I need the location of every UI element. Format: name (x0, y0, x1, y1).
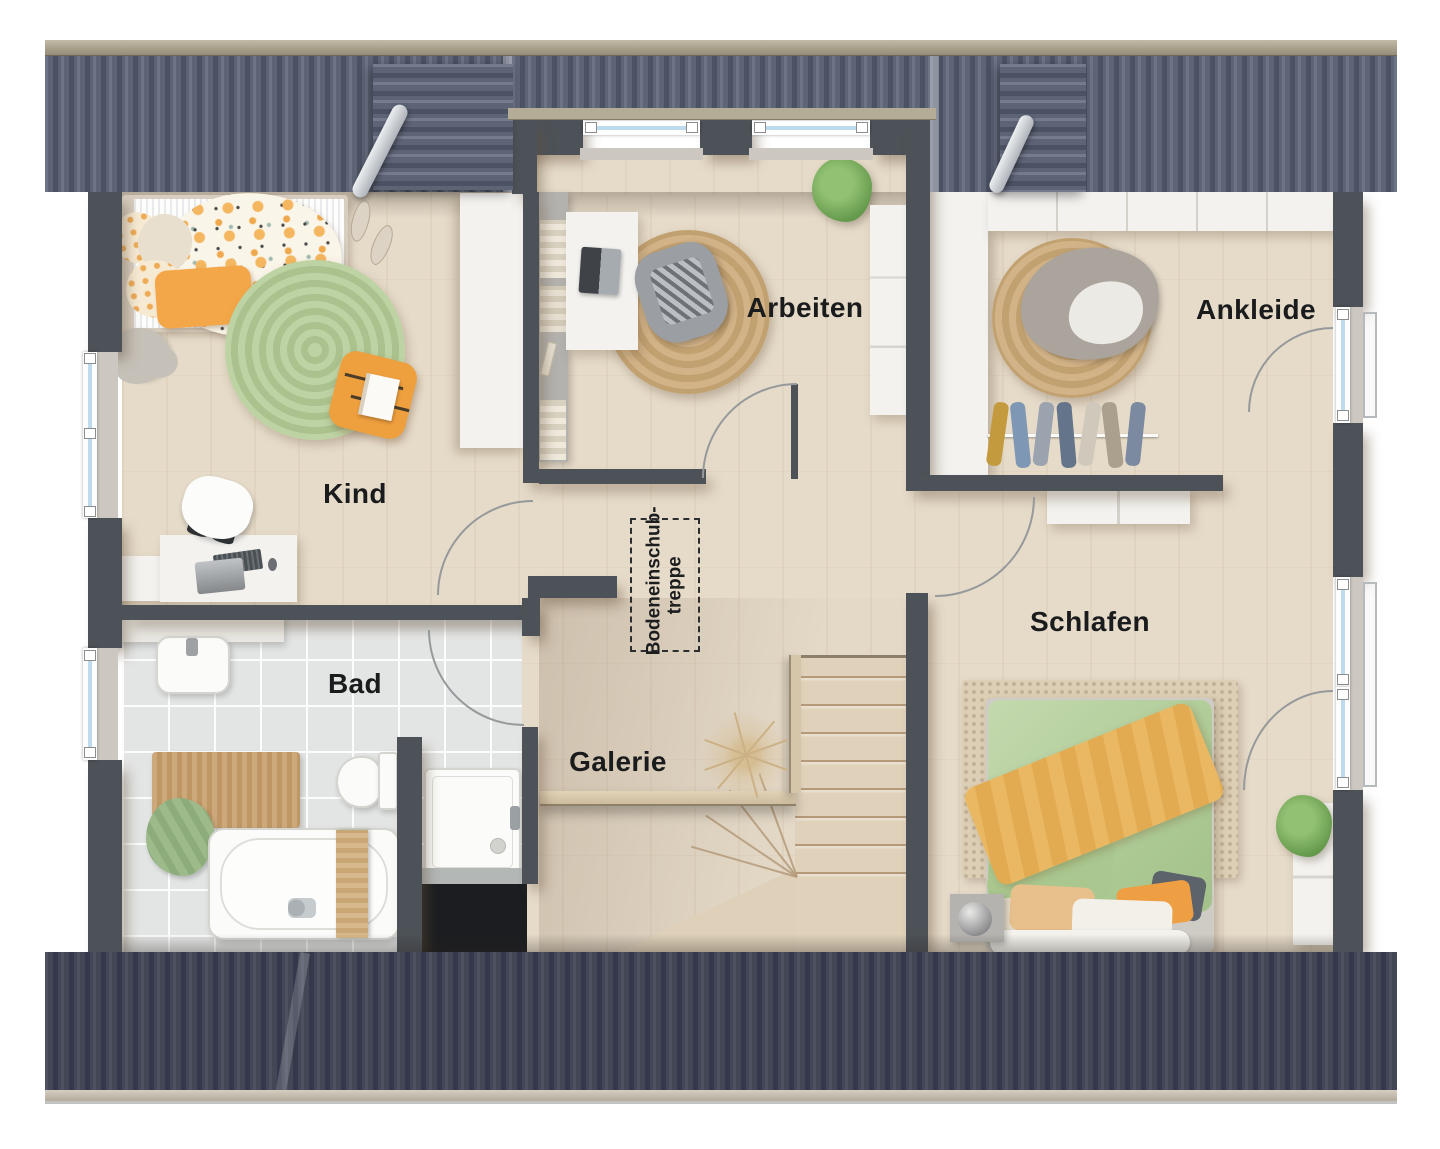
window-glass (1341, 691, 1345, 786)
room-label-schlafen: Schlafen (1020, 606, 1160, 638)
attic-hatch-label: Bodeneinschub- treppe (644, 515, 687, 655)
wall-bad-inner (397, 737, 422, 952)
window-cap (84, 650, 96, 661)
window-sill (1350, 577, 1363, 790)
window-glass (756, 126, 866, 130)
bad-sink-faucet (186, 638, 198, 656)
arbeiten-laptop (578, 247, 621, 296)
window-cap (1337, 410, 1349, 421)
wall-bad-east (522, 598, 540, 636)
window-glass (587, 126, 696, 130)
roof-edge-highlight (930, 56, 939, 192)
ankleide-cabinet-bottom (1047, 487, 1190, 524)
arbeiten-books (540, 286, 566, 332)
kind-monitor (194, 558, 245, 595)
room-label-arbeiten: Arbeiten (735, 292, 875, 324)
window-cap (84, 747, 96, 758)
schlafen-sphere-lamp (958, 902, 992, 936)
schlafen-plant (1276, 795, 1332, 857)
window-arbeiten-2 (752, 121, 870, 135)
bad-towel-green (146, 798, 214, 876)
window-cap (585, 122, 597, 133)
wall-outer-left (88, 518, 122, 648)
wall-schlafen-west (906, 593, 928, 952)
wall-hall-stub (528, 576, 617, 598)
window-sill (1350, 307, 1363, 423)
window-ankleide (1336, 307, 1350, 423)
bad-shower-drain (490, 838, 506, 854)
roof-ridge-top (45, 40, 1397, 57)
stair-tread (795, 732, 906, 734)
wall-arbeiten-south (539, 469, 706, 484)
window-bad (83, 648, 97, 760)
wall-kind-arbeiten (523, 192, 539, 483)
wall-bad-east (522, 727, 538, 884)
room-label-kind: Kind (300, 478, 410, 510)
kind-wardrobe (460, 193, 527, 448)
room-label-ankleide: Ankleide (1186, 294, 1326, 326)
window-cap (686, 122, 698, 133)
roof-band-bottom (45, 952, 1397, 1092)
stair-tread (795, 872, 906, 874)
wall-ankleide-schlafen (906, 475, 1223, 491)
room-label-bad: Bad (320, 668, 390, 700)
room-label-galerie: Galerie (548, 746, 688, 778)
window-glass (1341, 311, 1345, 419)
floor-plan: Kind Arbeiten Ankleide (0, 0, 1440, 1149)
window-outer-frame (1363, 582, 1377, 787)
bad-toilet-bowl (336, 756, 384, 808)
wall-dormer-top (700, 118, 752, 155)
glass-door-schlafen (1336, 687, 1350, 790)
window-cap (754, 122, 766, 133)
window-cap (1337, 579, 1349, 590)
ankleide-wardrobe-left (928, 192, 988, 475)
arbeiten-cabinet (870, 205, 906, 415)
window-handle (84, 428, 96, 439)
window-arbeiten-1 (583, 121, 700, 135)
stair-tread (795, 704, 906, 706)
wall-outer-right (1333, 192, 1363, 307)
window-cap (1337, 674, 1349, 685)
stair-tread (795, 760, 906, 762)
window-sill (97, 352, 118, 518)
bad-shower-faucet (510, 806, 520, 830)
window-cap (1337, 777, 1349, 788)
attic-hatch-outline: Bodeneinschub- treppe (630, 518, 700, 652)
arbeiten-plant (812, 158, 872, 222)
wall-outer-left (88, 760, 122, 952)
bad-shower-inner (432, 776, 513, 868)
wall-dormer-side (512, 118, 537, 194)
bad-toilet-tank (378, 752, 398, 810)
bad-tub-caddy (336, 830, 368, 938)
stair-tread (795, 788, 906, 790)
roof-dormer-right (1000, 64, 1086, 192)
bad-tub-faucet (288, 898, 316, 918)
wall-outer-right (1333, 790, 1363, 952)
stair-tread (795, 816, 906, 818)
roof-ridge-bottom (45, 1090, 1397, 1104)
dormer-fascia-band (508, 108, 936, 120)
ankleide-cabinet-top (988, 192, 1333, 231)
floor-bottom-shadow (122, 934, 1333, 952)
kind-mouse (268, 558, 277, 571)
window-cap (1337, 309, 1349, 320)
window-glass (88, 652, 92, 756)
arbeiten-books (540, 400, 566, 460)
window-outer-frame (1363, 312, 1377, 418)
wall-arbeiten-ankleide (906, 118, 930, 477)
window-sill (580, 148, 703, 160)
stair-tread (795, 676, 906, 678)
window-cap (856, 122, 868, 133)
window-sill (97, 648, 118, 760)
wall-kind-bad (122, 605, 532, 620)
window-cap (84, 506, 96, 517)
roof-band-top-middle (512, 56, 930, 109)
window-cap (1337, 689, 1349, 700)
wall-outer-left (88, 192, 122, 352)
arbeiten-books (540, 220, 566, 278)
window-schlafen (1336, 577, 1350, 687)
window-sill (749, 148, 873, 160)
window-cap (84, 353, 96, 364)
window-glass (1341, 581, 1345, 683)
stair-tread (795, 844, 906, 846)
wall-outer-right (1333, 423, 1363, 577)
stairwell (795, 655, 906, 952)
